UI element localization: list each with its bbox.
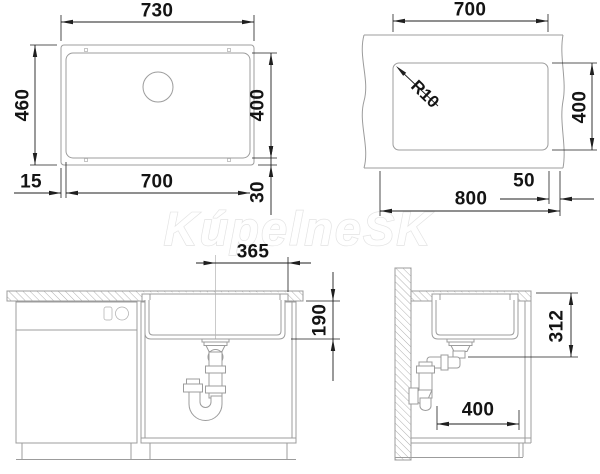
cutout-outline (393, 63, 548, 150)
dim-label-190: 190 (310, 304, 331, 337)
sink-outline (61, 45, 254, 165)
fixing-clip (228, 49, 231, 52)
control-panel-icon (104, 307, 112, 320)
drain-hole (143, 72, 173, 102)
plinth-front (16, 443, 296, 460)
dim-label-400-cutout: 400 (570, 91, 591, 124)
dim-label-365: 365 (237, 242, 270, 263)
fixing-clip (85, 49, 88, 52)
dim-corner-radius: R10 (396, 66, 443, 112)
break-line-right (562, 35, 564, 168)
worktop-cutout-view: 700 R10 400 50 (362, 0, 597, 216)
bowl-outline (66, 53, 250, 158)
break-line-left (362, 35, 365, 168)
wall-section (395, 268, 411, 460)
dim-label-30: 30 (248, 181, 269, 203)
installation-front-view: 365 190 (7, 242, 340, 460)
watermark: KúpelneSK (164, 202, 434, 255)
watermark-text: KúpelneSK (164, 202, 434, 255)
bowl-front-outer (145, 300, 285, 339)
dim-cutout-depth: 400 (552, 63, 597, 150)
dishwasher-front (16, 302, 137, 443)
dim-label-312: 312 (547, 310, 568, 343)
dim-cutout-width: 700 (393, 0, 548, 32)
dim-bowl-depth: 400 (248, 53, 278, 158)
control-knob-icon (116, 307, 129, 320)
dim-overall-width: 730 (61, 1, 254, 42)
drawing-canvas: KúpelneSK 730 460 (0, 0, 600, 474)
dim-label-400-side: 400 (462, 400, 495, 421)
fixing-clip (85, 159, 88, 162)
dim-label-800: 800 (455, 189, 488, 210)
dim-label-460: 460 (13, 89, 34, 122)
siphon-front (184, 339, 230, 421)
dim-label-700-cutout: 700 (454, 0, 487, 21)
dim-label-15: 15 (20, 172, 42, 193)
dim-label-50: 50 (513, 171, 535, 192)
sink-top-view: 730 460 400 15 (13, 1, 278, 216)
dim-label-700: 700 (141, 172, 174, 193)
dim-bowl-width: 700 (66, 172, 250, 196)
dim-bowl-depth-front: 190 (291, 272, 340, 381)
dim-edge-distance: 50 (500, 171, 594, 217)
trap-u-bend (189, 392, 222, 421)
dim-label-730: 730 (141, 1, 174, 22)
dim-overall-depth: 460 (13, 45, 58, 165)
dim-label-400: 400 (248, 89, 269, 122)
technical-drawing-sheet: KúpelneSK 730 460 (0, 0, 600, 474)
dim-rim-side: 15 (14, 162, 66, 198)
fixing-clip (228, 159, 231, 162)
dim-clearance-depth: 400 (437, 400, 519, 431)
bowl-side-outer (432, 300, 518, 339)
installation-side-view: 312 400 (395, 268, 578, 460)
